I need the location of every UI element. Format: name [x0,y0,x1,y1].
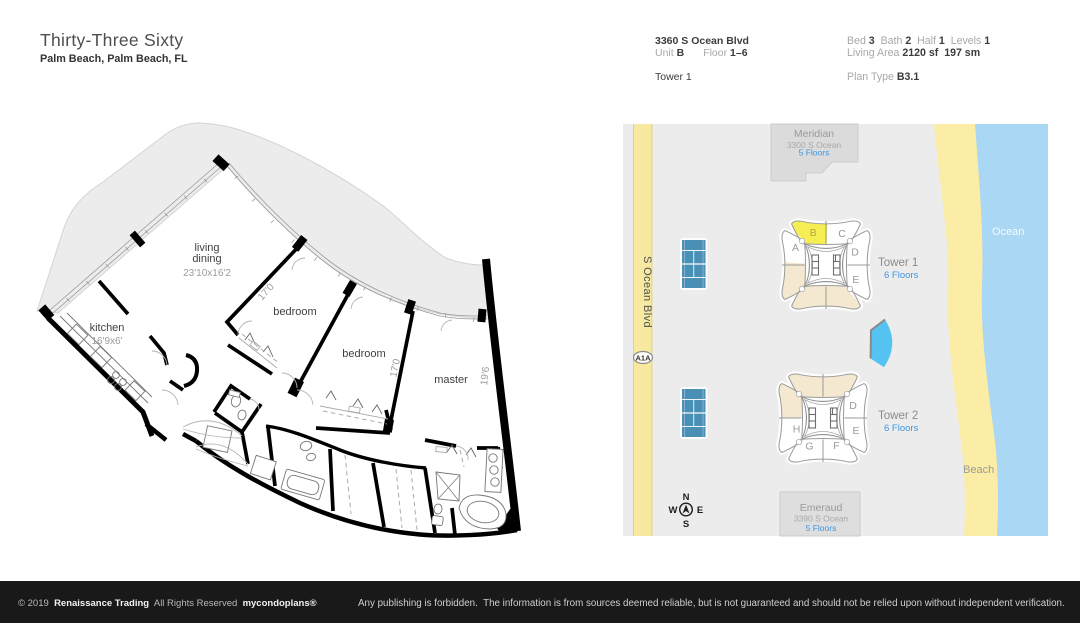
svg-text:A1A: A1A [635,354,651,363]
svg-text:19'6: 19'6 [479,366,492,386]
svg-text:6 Floors: 6 Floors [884,270,919,281]
svg-text:6 Floors: 6 Floors [884,423,919,434]
svg-text:S Ocean Blvd: S Ocean Blvd [641,256,653,328]
svg-text:Emeraud: Emeraud [800,502,843,514]
svg-text:G: G [805,441,813,453]
svg-text:E: E [852,274,859,286]
svg-text:dining: dining [192,253,221,265]
svg-text:16'9x6': 16'9x6' [91,336,122,347]
svg-text:Ocean: Ocean [992,226,1024,238]
svg-text:master: master [434,374,468,386]
svg-text:bedroom: bedroom [273,306,316,318]
svg-text:A: A [792,242,799,254]
svg-text:5 Floors: 5 Floors [799,148,830,158]
svg-text:E: E [697,505,703,516]
svg-text:3390 S Ocean: 3390 S Ocean [794,514,849,524]
svg-text:bedroom: bedroom [342,348,385,360]
svg-text:23'10x16'2: 23'10x16'2 [183,268,231,279]
svg-text:W: W [669,505,678,516]
svg-text:5 Floors: 5 Floors [806,523,837,533]
svg-text:Beach: Beach [963,464,994,476]
svg-text:N: N [683,492,690,503]
svg-text:D: D [851,247,859,259]
svg-text:Tower 2: Tower 2 [878,410,918,422]
svg-text:Meridian: Meridian [794,128,834,140]
svg-text:17'0: 17'0 [256,281,277,303]
svg-text:B: B [810,227,817,239]
svg-text:kitchen: kitchen [90,322,125,334]
svg-text:H: H [793,424,801,436]
svg-text:Tower 1: Tower 1 [878,257,918,269]
svg-text:F: F [833,440,839,452]
svg-text:E: E [852,425,859,437]
svg-text:S: S [683,519,689,530]
svg-text:D: D [849,400,857,412]
svg-text:C: C [838,228,846,240]
